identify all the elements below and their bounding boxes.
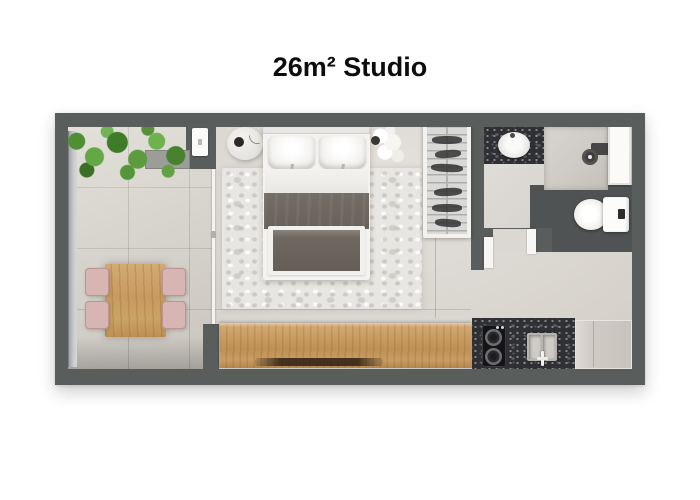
dining-chair (85, 268, 109, 296)
wall-panel (192, 128, 208, 156)
shower-glass-panel (608, 124, 631, 185)
dining-chair (162, 301, 186, 329)
page-title: 26m² Studio (0, 52, 700, 83)
sliding-glass-door (212, 169, 215, 324)
bathroom-faucet (510, 133, 515, 138)
wall-left (55, 113, 68, 385)
kitchen-faucet-handle (537, 357, 548, 360)
bed-sheet (265, 169, 368, 194)
shower-head-dot (588, 155, 592, 159)
stove-knob (496, 326, 499, 329)
nightstand-bowl (234, 137, 244, 147)
bed-blanket (264, 193, 369, 229)
shower (544, 127, 608, 190)
folded-blanket-inner (273, 230, 360, 271)
plants-icon (64, 122, 191, 182)
flower-vase (371, 136, 380, 145)
fridge (575, 320, 632, 369)
balcony-shadow (68, 337, 212, 369)
wall-right (632, 113, 645, 385)
hanging-clothes (432, 204, 462, 212)
bathroom-door-jamb (527, 229, 536, 254)
dining-chair (85, 301, 109, 329)
wardrobe (423, 122, 471, 238)
flowers-icon (369, 125, 407, 169)
stove-burner-icon (485, 348, 502, 365)
sliding-door-handle (211, 231, 216, 238)
wall-panel-mark (198, 139, 202, 145)
wall-balcony-divider-bottom (203, 324, 219, 369)
bathroom-door-jamb (484, 237, 493, 268)
bathroom-door-opening (493, 229, 527, 252)
floor-tile-line (215, 309, 471, 310)
folded-blanket (268, 226, 365, 275)
sideboard-shadow (255, 358, 383, 366)
fridge-door-line (593, 321, 594, 367)
toilet-flush-button (618, 209, 625, 219)
wall-top (55, 113, 645, 127)
dining-table (105, 264, 166, 337)
hanging-clothes (432, 136, 462, 144)
stove-burner-icon (485, 329, 502, 346)
pillow (319, 136, 366, 169)
dining-chair (162, 268, 186, 296)
toilet-tank (603, 197, 629, 232)
wall-bottom (55, 369, 645, 385)
pillow (268, 136, 315, 169)
sink-basin (529, 335, 541, 359)
sink-basin (543, 335, 555, 359)
double-bed (263, 125, 370, 280)
stove-knob (501, 326, 504, 329)
floor-plan (55, 113, 645, 385)
